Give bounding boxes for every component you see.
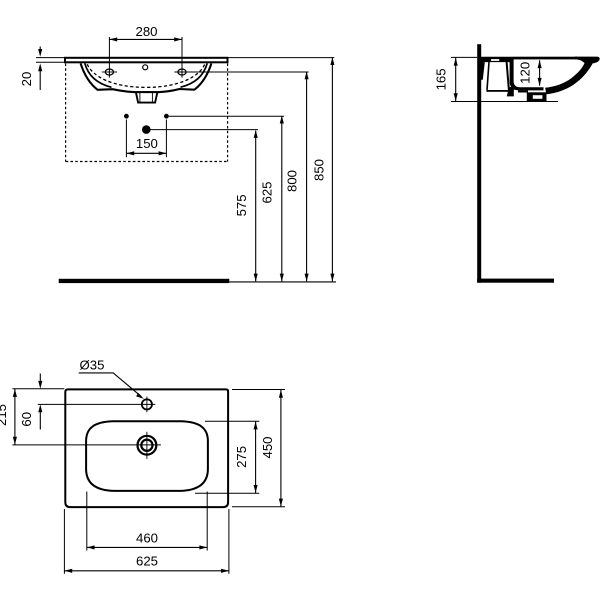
svg-text:800: 800: [284, 170, 299, 192]
svg-text:450: 450: [260, 436, 275, 458]
svg-text:625: 625: [260, 181, 275, 203]
svg-text:625: 625: [136, 553, 158, 568]
svg-text:Ø35: Ø35: [80, 357, 105, 372]
svg-text:275: 275: [234, 446, 249, 468]
svg-text:460: 460: [136, 530, 158, 545]
svg-text:850: 850: [311, 159, 326, 181]
svg-text:575: 575: [234, 194, 249, 216]
svg-text:165: 165: [434, 68, 449, 90]
svg-text:20: 20: [19, 72, 34, 87]
svg-text:280: 280: [135, 24, 157, 39]
svg-text:60: 60: [19, 412, 34, 427]
svg-text:215: 215: [0, 404, 9, 426]
svg-text:120: 120: [517, 62, 532, 84]
svg-text:150: 150: [136, 136, 158, 151]
